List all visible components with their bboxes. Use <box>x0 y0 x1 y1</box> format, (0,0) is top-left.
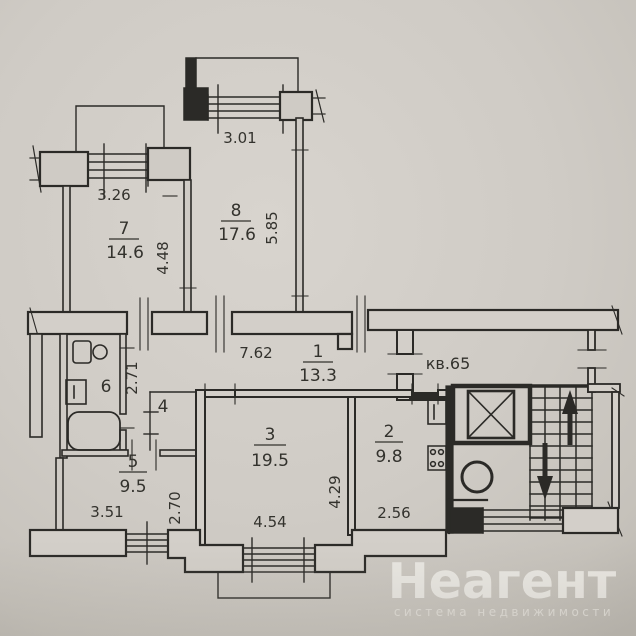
photo-shading <box>0 0 636 636</box>
floor-plan-photo: 3.01 8 17.6 5.85 3.26 7 14.6 4.48 7.62 1… <box>0 0 636 636</box>
floor-plan: 3.01 8 17.6 5.85 3.26 7 14.6 4.48 7.62 1… <box>0 0 636 636</box>
